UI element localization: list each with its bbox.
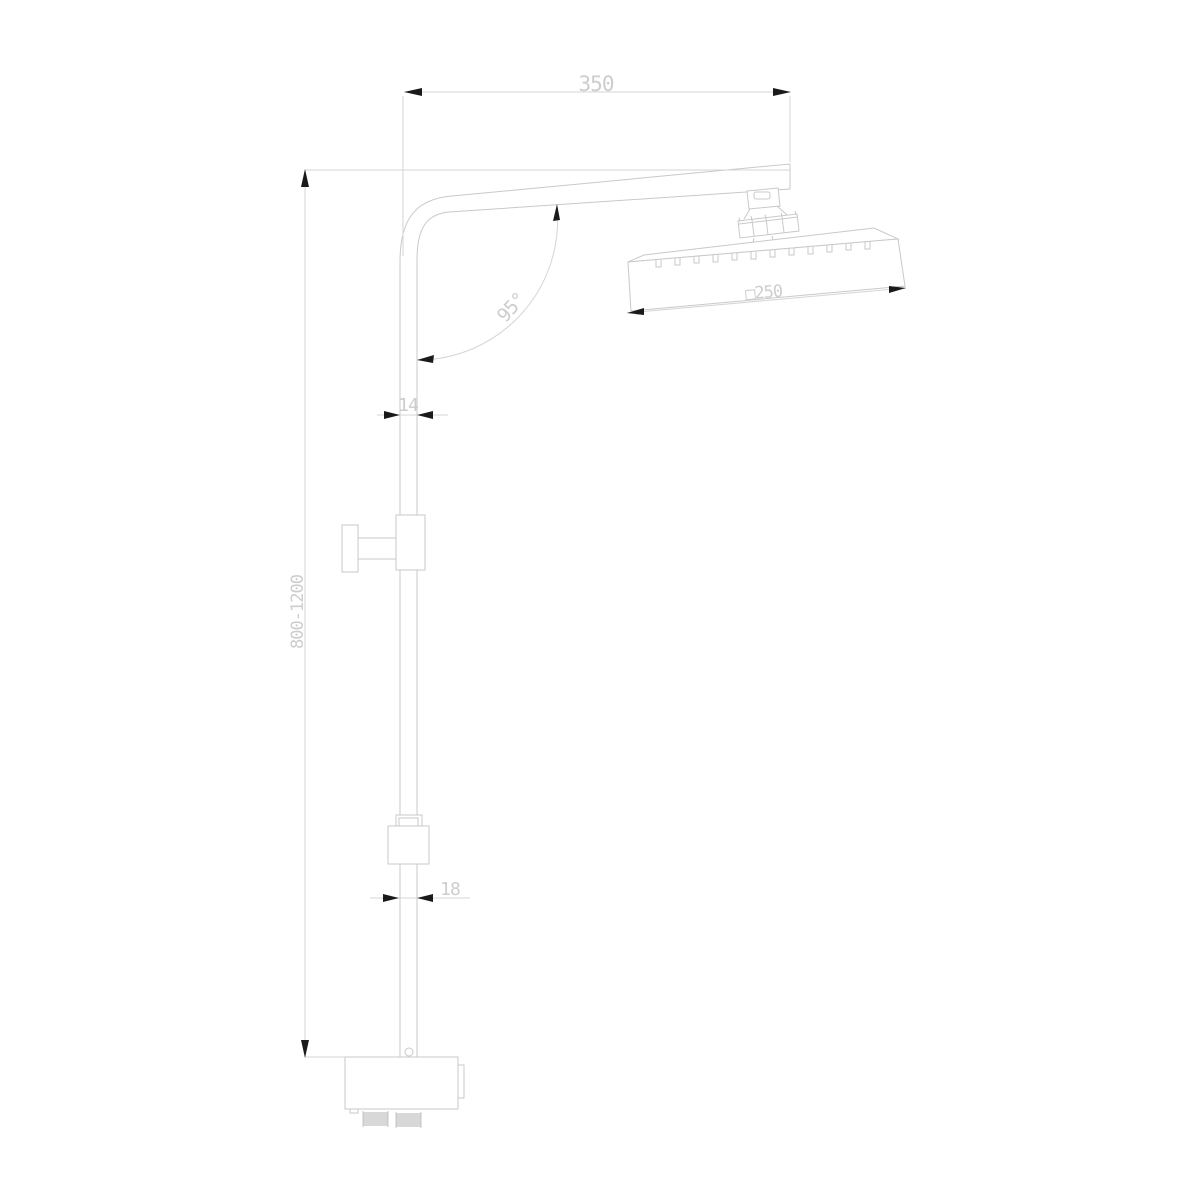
connector-body [388,826,429,864]
arrow-left [417,355,434,363]
mixer-housing [345,1057,458,1109]
mixer-bottom-tab [350,1109,358,1113]
arrow-right [417,894,433,902]
bracket-wall-plate [342,525,358,572]
wall-bracket [342,515,425,572]
dimension-value: 14 [398,395,418,416]
bracket-arm [358,538,396,559]
inlet-thread-right [396,1112,421,1128]
arrow-right [417,411,433,419]
inlet-thread-left [363,1111,388,1127]
pipe-connector [388,815,429,864]
arrow-up [301,169,309,187]
mixer-screw-hole [405,1048,413,1056]
drawing-canvas: 350 800-1200 14 18 95° □250 [0,0,1200,1200]
mixer-body [345,1048,464,1128]
dimension-value: □250 [744,281,783,304]
arrow-down [301,1040,309,1058]
angle-arc [418,207,558,360]
bracket-slider [396,515,425,570]
dimension-value: 18 [440,879,460,900]
drawing-page: 350 800-1200 14 18 95° □250 [0,0,1200,1200]
dimension-value: 95° [493,289,530,327]
upper-pipe-dimension: 14 [377,395,448,419]
mixer-side-tab [458,1065,464,1098]
dimension-line [403,92,790,256]
dimension-value: 800-1200 [288,574,308,649]
lower-pipe-dimension: 18 [370,879,470,902]
arrow-left [404,88,422,96]
arrow-left [383,894,399,902]
arm-width-dimension: 350 [403,72,791,256]
arrow-top [553,204,560,221]
dimension-value: 350 [579,72,614,96]
arm-angle-dimension: 95° [417,204,560,363]
arrow-right [889,286,906,293]
arrow-right [773,88,791,96]
